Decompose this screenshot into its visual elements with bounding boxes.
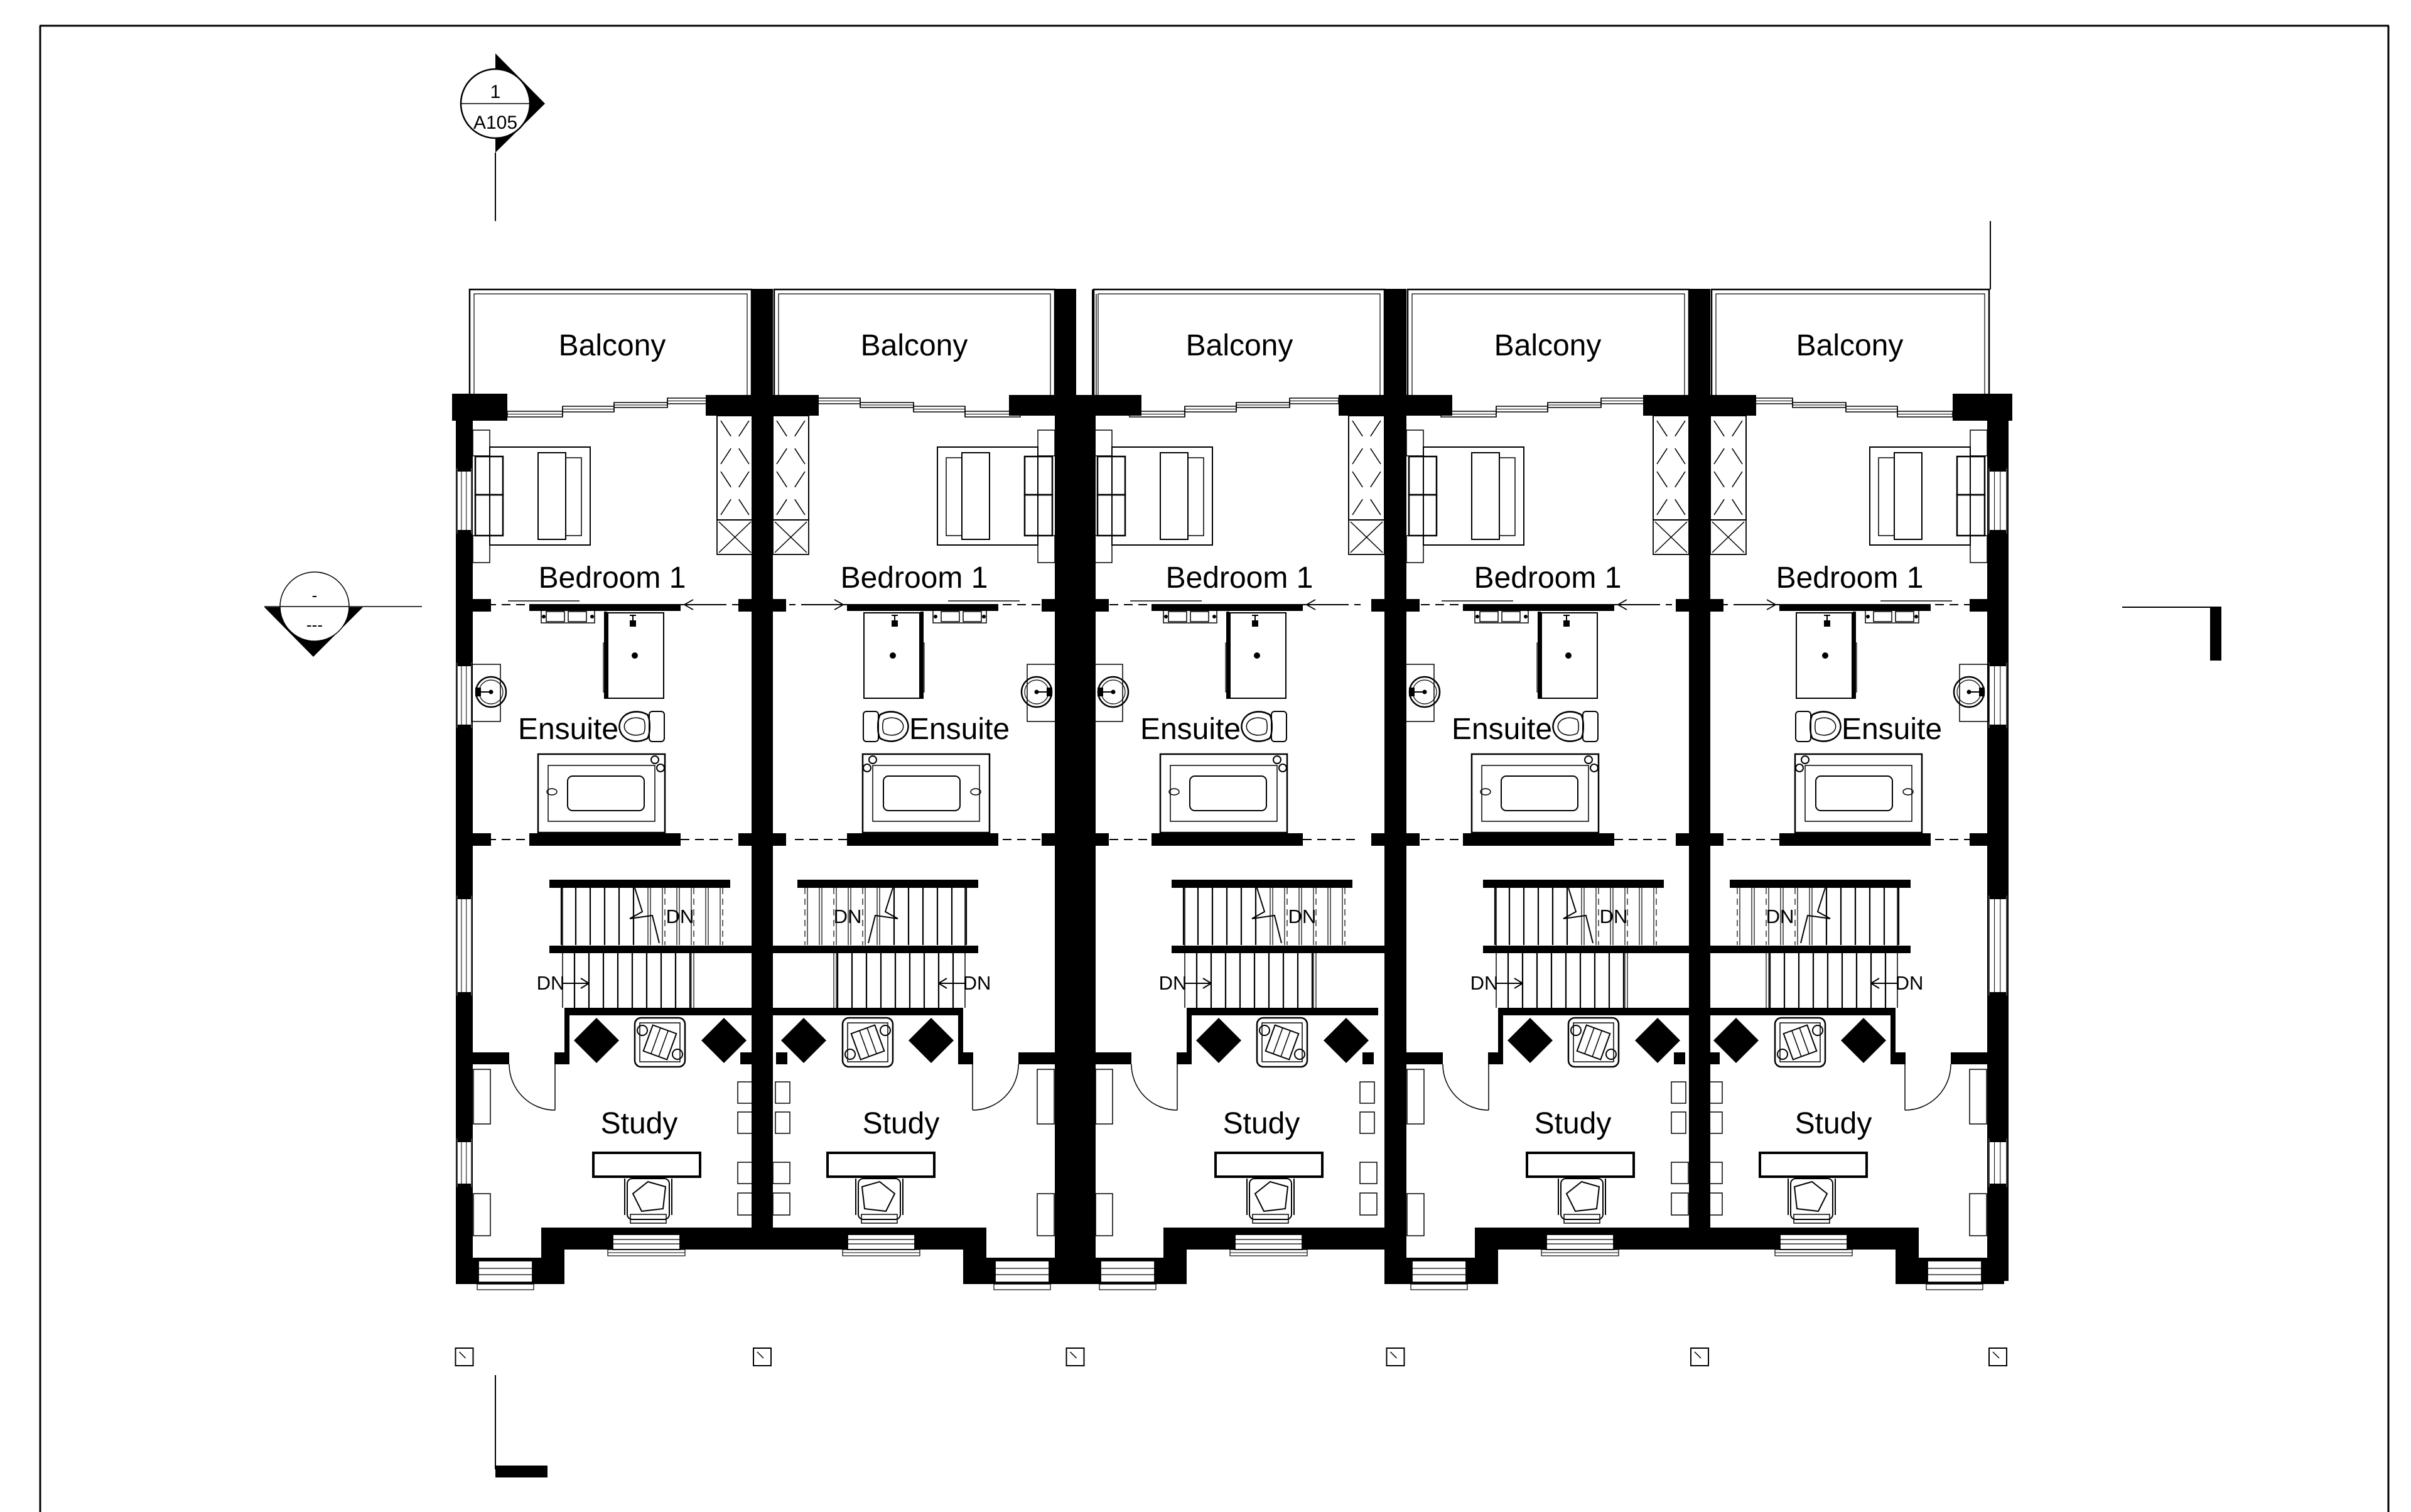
svg-text:Study: Study bbox=[1795, 1107, 1872, 1140]
svg-text:DN: DN bbox=[1766, 905, 1794, 927]
svg-text:-: - bbox=[312, 586, 318, 605]
svg-text:Balcony: Balcony bbox=[1796, 329, 1904, 362]
svg-text:Bedroom 1: Bedroom 1 bbox=[539, 561, 686, 595]
svg-text:DN: DN bbox=[1470, 972, 1499, 994]
svg-text:Ensuite: Ensuite bbox=[1140, 713, 1241, 746]
svg-text:Study: Study bbox=[601, 1107, 678, 1140]
svg-text:Balcony: Balcony bbox=[1494, 329, 1602, 362]
svg-text:DN: DN bbox=[1600, 905, 1628, 927]
svg-text:A105: A105 bbox=[473, 112, 517, 133]
svg-text:Study: Study bbox=[1535, 1107, 1612, 1140]
svg-text:Balcony: Balcony bbox=[559, 329, 666, 362]
svg-text:DN: DN bbox=[963, 972, 991, 994]
svg-text:Ensuite: Ensuite bbox=[1452, 713, 1552, 746]
svg-text:DN: DN bbox=[1159, 972, 1187, 994]
svg-text:Balcony: Balcony bbox=[861, 329, 968, 362]
svg-text:Bedroom 1: Bedroom 1 bbox=[1166, 561, 1313, 595]
svg-text:Study: Study bbox=[863, 1107, 940, 1140]
svg-text:DN: DN bbox=[666, 905, 694, 927]
svg-text:Balcony: Balcony bbox=[1186, 329, 1293, 362]
svg-text:1: 1 bbox=[490, 82, 501, 102]
svg-text:Ensuite: Ensuite bbox=[1842, 713, 1942, 746]
svg-text:Ensuite: Ensuite bbox=[518, 713, 618, 746]
svg-text:Bedroom 1: Bedroom 1 bbox=[1776, 561, 1924, 595]
svg-text:DN: DN bbox=[537, 972, 565, 994]
svg-text:Bedroom 1: Bedroom 1 bbox=[841, 561, 988, 595]
svg-text:DN: DN bbox=[834, 905, 862, 927]
svg-text:Study: Study bbox=[1223, 1107, 1300, 1140]
svg-text:DN: DN bbox=[1288, 905, 1317, 927]
svg-text:---: --- bbox=[306, 615, 323, 634]
svg-text:Bedroom 1: Bedroom 1 bbox=[1474, 561, 1622, 595]
svg-text:Ensuite: Ensuite bbox=[909, 713, 1010, 746]
svg-text:DN: DN bbox=[1896, 972, 1924, 994]
